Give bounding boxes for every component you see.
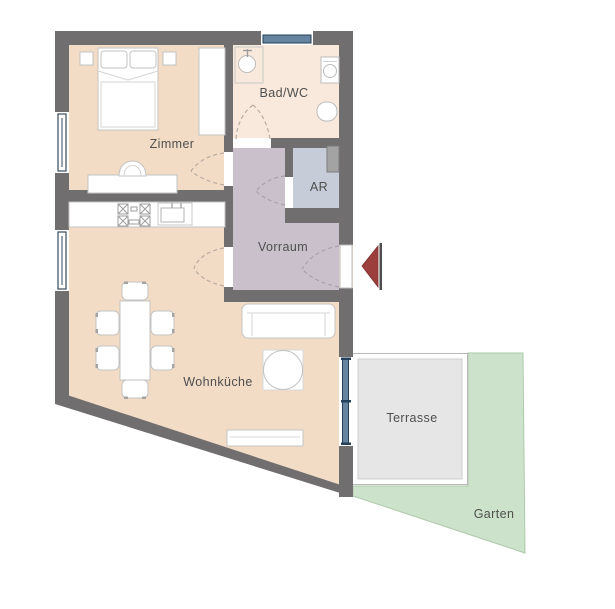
terrace-door [339, 357, 353, 446]
kitchen-window [55, 230, 69, 291]
room-label-bad-wc: Bad/WC [260, 86, 309, 100]
room-label-vorraum: Vorraum [258, 240, 308, 254]
lowboard [227, 430, 303, 446]
duct-shaft [327, 146, 339, 172]
wardrobe [199, 48, 225, 135]
dining-chair-bottom [122, 380, 148, 398]
pillow-left [101, 51, 127, 68]
desk [88, 175, 177, 193]
room-label-garten: Garten [474, 507, 515, 521]
room-label-wohnkueche: Wohnküche [183, 375, 252, 389]
dining-chair-left-2 [96, 346, 119, 370]
entrance-door-leaf [340, 245, 352, 288]
pillow-right [130, 51, 156, 68]
washbasin [239, 56, 256, 73]
kitchen-furniture [69, 202, 225, 227]
dining-chair-left-1 [96, 311, 119, 335]
bath-window-glass [263, 35, 311, 43]
dining-chair-top [122, 282, 148, 300]
kitchen-sink [158, 203, 192, 225]
dining-chair-right-2 [151, 346, 174, 370]
floor-plan: Zimmer Bad/WC AR Vorraum Wohnküche Terra… [0, 0, 615, 609]
room-label-terrasse: Terrasse [386, 411, 437, 425]
room-label-zimmer: Zimmer [150, 137, 195, 151]
sofa [242, 304, 335, 338]
dining-table [120, 301, 150, 380]
dining-chair-right-1 [151, 311, 174, 335]
coffee-table [264, 351, 303, 390]
nightstand-right [163, 52, 176, 65]
bedroom-window [55, 112, 69, 173]
toilet [317, 102, 337, 121]
room-label-ar: AR [310, 180, 328, 194]
nightstand-left [80, 52, 93, 65]
floor-plan-page: Zimmer Bad/WC AR Vorraum Wohnküche Terra… [0, 0, 615, 609]
entrance-arrow-icon [362, 243, 382, 290]
